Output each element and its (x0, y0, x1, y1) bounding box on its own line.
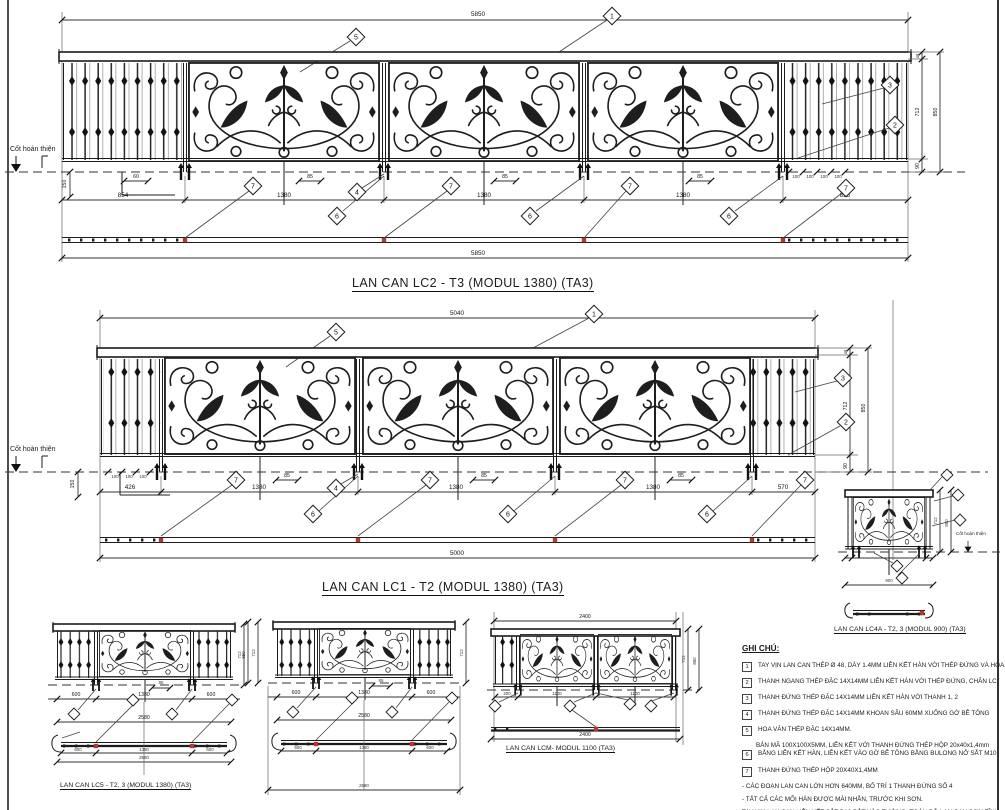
note-text: THANH ĐỨNG THÉP HỘP 20X40X1,4MM (758, 767, 878, 774)
note-text: THANH ĐỨNG THÉP ĐẶC 14X14MM KHOAN SÂU 60… (758, 710, 990, 717)
svg-text:6: 6 (311, 511, 315, 518)
svg-text:85: 85 (481, 473, 487, 479)
level-marker (965, 541, 972, 552)
note-number: 4 (742, 710, 752, 720)
note-item: 3THANH ĐỨNG THÉP ĐẶC 14X14MM LIÊN KẾT HÀ… (742, 694, 1004, 704)
height-dim-chain: 48 712 90 850 (815, 345, 872, 475)
callout-5: 5 (327, 323, 345, 341)
note-number: 1 (742, 662, 752, 672)
svg-text:48: 48 (915, 53, 920, 58)
level-marker (11, 156, 21, 172)
level-marker (11, 456, 21, 472)
dim-label: 5040 (450, 310, 465, 317)
callout-6: 6 (521, 207, 539, 225)
callout-6: 6 (304, 505, 322, 523)
baluster-section (277, 629, 315, 676)
note-item: BẢN MÃ 100X100X5MM, LIÊN KẾT VỚI THANH Đ… (742, 742, 1004, 749)
segment-dim-row: 6001380600 (268, 690, 460, 700)
note-text: TAY VỊN LAN CAN THÉP Ø 48, DÀY 1.4MM LIÊ… (758, 662, 1005, 669)
notes-heading: GHI CHÚ: (742, 644, 1004, 653)
svg-text:2: 2 (893, 122, 897, 129)
baluster-section-left (103, 359, 161, 455)
dim-label: 85 (379, 678, 384, 683)
svg-text:854: 854 (118, 192, 129, 199)
svg-text:426: 426 (125, 484, 136, 491)
svg-text:85: 85 (284, 473, 290, 479)
callout-6: 6 (328, 207, 346, 225)
svg-text:1380: 1380 (646, 484, 661, 491)
svg-text:712: 712 (681, 655, 686, 663)
callout-4: 4 (348, 183, 366, 201)
ornate-panel (853, 497, 924, 546)
dim-label: 150 (70, 480, 76, 489)
svg-text:6: 6 (506, 511, 510, 518)
baluster-section (495, 636, 517, 684)
title-lc2: LAN CAN LC2 - T3 (MODUL 1380) (TA3) (352, 276, 594, 292)
label-lc5: LAN CAN LC5 - T2, 3 (MODUL 1380) (TA3) (60, 782, 191, 790)
svg-text:1380: 1380 (676, 192, 691, 199)
svg-text:85: 85 (697, 174, 703, 180)
svg-text:600: 600 (427, 690, 436, 696)
svg-text:100: 100 (125, 474, 133, 479)
drawing-lc4a: 712 850 900 (838, 469, 1000, 618)
ornate-panel (99, 630, 190, 676)
note-bullet: - CÁC ĐOẠN LAN CAN LỚN HƠN 640MM, BỐ TRÍ… (742, 783, 1004, 790)
ornate-panel (598, 634, 671, 683)
dim-label: 2400 (579, 614, 591, 620)
dim-label: 60 (133, 174, 139, 180)
svg-text:850: 850 (861, 404, 867, 413)
svg-text:85: 85 (307, 174, 313, 180)
svg-text:7: 7 (803, 477, 807, 484)
note-text: THANH ĐỨNG THÉP ĐẶC 14X14MM LIÊN KẾT HÀN… (758, 694, 958, 701)
drawing-lcm: 2400 712 850 200 1100 1100 2400 (487, 612, 702, 745)
baluster-section (57, 631, 95, 678)
svg-text:600: 600 (207, 692, 216, 698)
ornate-panel (389, 63, 579, 161)
level-label-mid: Cốt hoàn thiện (10, 446, 56, 453)
svg-text:100: 100 (139, 474, 147, 479)
svg-text:570: 570 (778, 484, 789, 491)
handrail (59, 52, 911, 61)
dim-label: 5000 (450, 550, 465, 557)
svg-text:3: 3 (888, 82, 892, 89)
svg-text:712: 712 (915, 108, 921, 117)
note-number: 5 (742, 726, 752, 736)
drawing-lc1-elevation: 5040 1 5 150 100100100 85 85 85 48 712 9… (5, 300, 988, 562)
svg-text:4: 4 (355, 189, 359, 196)
callout-6: 6 (698, 505, 716, 523)
callout-3: 3 (834, 369, 852, 387)
svg-text:200: 200 (503, 691, 511, 696)
note-number: 3 (742, 694, 752, 704)
level-label-lc4a: Cốt hoàn thiện (956, 531, 986, 536)
svg-text:2580: 2580 (359, 783, 369, 788)
label-lc4a: LAN CAN LC4A - T2, 3 (MODUL 900) (TA3) (834, 626, 966, 634)
base-bar (491, 727, 680, 731)
drawing-lc5b: 712 850 712 85 6001380600 2580 600138060… (241, 619, 469, 795)
callout-7: 7 (621, 177, 639, 195)
height-dim-chain: 48 712 90 850 (908, 49, 944, 175)
note-number: 7 (742, 767, 752, 777)
svg-text:6: 6 (528, 213, 532, 220)
drawing-lc2-elevation: 5850 1 5 150 60 85 85 85 ​ 100100 100100… (5, 7, 965, 262)
svg-text:7: 7 (428, 477, 432, 484)
plan-view (845, 603, 933, 618)
note-item: 6BẰNG LIÊN KẾT HÀN, LIÊN KẾT VÀO GỜ BÊ T… (742, 750, 1004, 760)
callout-7: 7 (796, 471, 814, 489)
svg-text:850: 850 (692, 657, 697, 665)
svg-text:7: 7 (251, 183, 255, 190)
segment-dim-row: 8541380 13801380 855 (59, 176, 911, 203)
svg-text:1380: 1380 (358, 690, 370, 696)
baluster-section (413, 629, 451, 676)
svg-text:1380: 1380 (252, 484, 267, 491)
svg-text:2: 2 (844, 419, 848, 426)
segment-dim-row: 200 1100 1100 (492, 691, 677, 700)
svg-text:1380: 1380 (477, 192, 492, 199)
drawing-sheet: 5850 1 5 150 60 85 85 85 ​ 100100 100100… (0, 0, 1005, 810)
svg-text:712: 712 (459, 649, 464, 657)
note-item: 5HOA VĂN THÉP ĐẶC 14X14MM. (742, 726, 1004, 736)
note-text: THANH NGANG THÉP ĐẶC 14X14MM LIÊN KẾT HÀ… (758, 678, 997, 685)
svg-text:1100: 1100 (552, 691, 562, 696)
svg-text:850: 850 (933, 108, 939, 117)
svg-text:7: 7 (628, 183, 632, 190)
ornate-panel (560, 358, 750, 454)
svg-text:100: 100 (792, 174, 800, 179)
callout-1: 1 (603, 7, 621, 25)
svg-text:6: 6 (727, 213, 731, 220)
baluster-section-left (66, 63, 183, 160)
base-bar (62, 238, 908, 243)
svg-text:48: 48 (843, 349, 848, 354)
svg-text:6: 6 (705, 511, 709, 518)
dim-label: 5850 (471, 250, 486, 257)
svg-text:1: 1 (592, 311, 596, 318)
callout-1: 1 (585, 305, 603, 323)
svg-text:7: 7 (844, 185, 848, 192)
note-item: 7THANH ĐỨNG THÉP HỘP 20X40X1,4MM (742, 767, 1004, 777)
svg-text:1380: 1380 (449, 484, 464, 491)
note-item: 4THANH ĐỨNG THÉP ĐẶC 14X14MM KHOAN SÂU 6… (742, 710, 1004, 720)
svg-text:1: 1 (610, 13, 614, 20)
svg-text:712: 712 (251, 649, 256, 657)
svg-text:4: 4 (334, 485, 338, 492)
svg-text:90: 90 (843, 463, 849, 469)
dim-label: 2400 (579, 732, 591, 738)
callout-5: 5 (347, 28, 365, 46)
svg-text:600: 600 (72, 692, 81, 698)
svg-text:712: 712 (933, 517, 938, 525)
ornate-panel (189, 63, 379, 161)
segment-dim-row: 6001380600 (48, 692, 240, 702)
label-lcm: LAN CAN LCM- MODUL 1100 (TA3) (506, 745, 615, 753)
svg-text:600: 600 (426, 745, 434, 750)
dim-label: 150 (62, 180, 68, 189)
svg-text:100: 100 (834, 174, 842, 179)
height-dim-chain: 712 850 (681, 626, 702, 693)
svg-text:850: 850 (241, 651, 246, 659)
note-item: 1TAY VỊN LAN CAN THÉP Ø 48, DÀY 1.4MM LI… (742, 662, 1004, 672)
baluster-section (193, 631, 231, 678)
note-number: 6 (742, 750, 752, 760)
svg-text:90: 90 (915, 163, 921, 169)
ornate-panel (363, 358, 553, 454)
svg-text:5: 5 (354, 34, 358, 41)
level-label-top: Cốt hoàn thiện (10, 146, 56, 153)
note-text: BẰNG LIÊN KẾT HÀN, LIÊN KẾT VÀO GỜ BÊ TÔ… (758, 750, 996, 757)
svg-text:7: 7 (449, 183, 453, 190)
spacing-dims: 100100100 (105, 469, 153, 479)
svg-text:712: 712 (843, 402, 849, 411)
ornate-panel (165, 358, 355, 454)
notes-block: GHI CHÚ: 1TAY VỊN LAN CAN THÉP Ø 48, DÀY… (742, 644, 1004, 810)
callout-2: 2 (837, 413, 855, 431)
note-number: 2 (742, 678, 752, 688)
ornate-panel (520, 634, 593, 683)
svg-text:1100: 1100 (630, 691, 640, 696)
svg-text:3: 3 (841, 375, 845, 382)
svg-text:600: 600 (74, 747, 82, 752)
svg-text:600: 600 (206, 747, 214, 752)
title-lc1: LAN CAN LC1 - T2 (MODUL 1380) (TA3) (322, 580, 564, 596)
ornate-panel (588, 63, 778, 161)
note-item: 2THANH NGANG THÉP ĐẶC 14X14MM LIÊN KẾT H… (742, 678, 1004, 688)
dim-label: 5850 (471, 11, 486, 18)
plan-dim-rows: 6001380600 2580 (54, 702, 234, 775)
svg-text:1380: 1380 (138, 692, 150, 698)
svg-text:100: 100 (806, 174, 814, 179)
svg-text:600: 600 (292, 690, 301, 696)
svg-text:5: 5 (334, 329, 338, 336)
callout-6: 6 (720, 207, 738, 225)
panel-anchor-dims: 85 85 85 (296, 174, 714, 184)
svg-text:7: 7 (234, 477, 238, 484)
svg-text:6: 6 (335, 213, 339, 220)
svg-text:85: 85 (502, 174, 508, 180)
dim-label: 85 (159, 680, 164, 685)
handrail (97, 348, 818, 357)
baluster-section-right (748, 359, 813, 455)
svg-text:100: 100 (111, 474, 119, 479)
dim-label: 900 (885, 578, 893, 583)
note-text: HOA VĂN THÉP ĐẶC 14X14MM. (758, 726, 852, 733)
note-bullet: - TẤT CẢ CÁC MỐI HÀN ĐƯỢC MÀI NHẴN, TRƯỚ… (742, 796, 1004, 803)
callout-6: 6 (499, 505, 517, 523)
ornate-panel (319, 628, 410, 674)
svg-text:100: 100 (820, 174, 828, 179)
note-text: BẢN MÃ 100X100X5MM, LIÊN KẾT VỚI THANH Đ… (756, 742, 989, 749)
svg-text:85: 85 (678, 473, 684, 479)
callout-7: 7 (616, 471, 634, 489)
svg-text:600: 600 (294, 745, 302, 750)
svg-text:1380: 1380 (277, 192, 292, 199)
drawing-lc5: 85 712 6001380600 2580 6001380600 2580 (48, 621, 247, 775)
svg-text:7: 7 (623, 477, 627, 484)
callout-4: 4 (327, 479, 345, 497)
base-bar (100, 538, 815, 543)
